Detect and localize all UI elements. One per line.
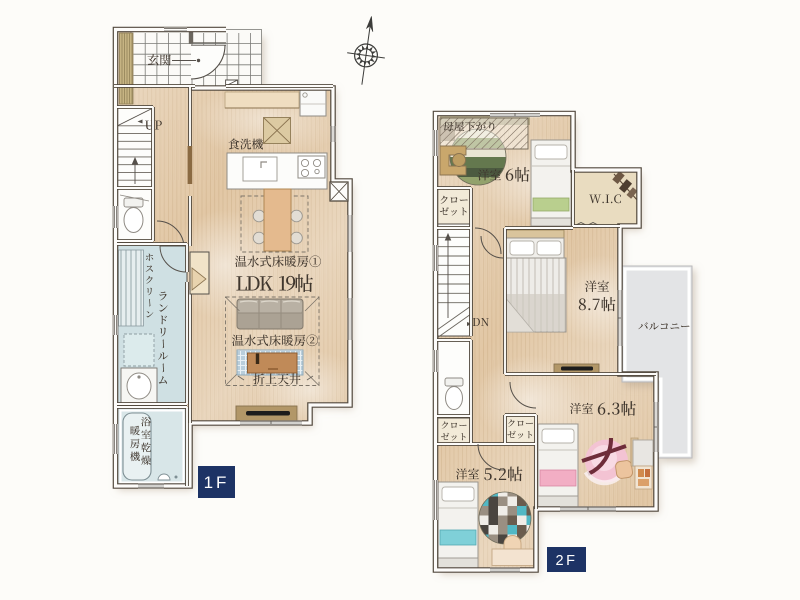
svg-text:1F: 1F	[204, 473, 230, 492]
svg-text:2F: 2F	[556, 553, 578, 569]
